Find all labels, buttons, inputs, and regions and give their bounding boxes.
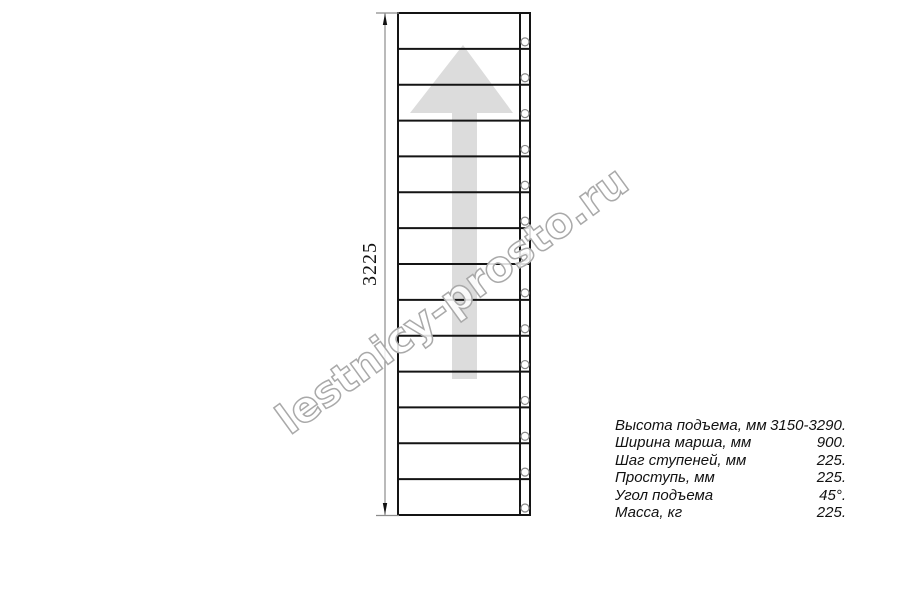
screw-hole-icon — [521, 181, 529, 189]
page: 3225 lestnicy-prosto.ru Высота подъема, … — [0, 0, 900, 600]
spec-label: Угол подъема — [615, 487, 713, 504]
specs-table: Высота подъема, мм3150-3290.Ширина марша… — [615, 417, 846, 521]
screw-hole-icon — [521, 361, 529, 369]
spec-row: Угол подъема45°. — [615, 487, 846, 504]
spec-value: 900. — [817, 434, 846, 451]
stringer-holes — [521, 38, 529, 512]
spec-row: Шаг ступеней, мм225. — [615, 452, 846, 469]
spec-row: Высота подъема, мм3150-3290. — [615, 417, 846, 434]
screw-hole-icon — [521, 74, 529, 82]
screw-hole-icon — [521, 432, 529, 440]
spec-row: Ширина марша, мм900. — [615, 434, 846, 451]
screw-hole-icon — [521, 325, 529, 333]
dimension-arrowhead-bottom — [383, 503, 387, 515]
spec-row: Проступь, мм225. — [615, 469, 846, 486]
screw-hole-icon — [521, 289, 529, 297]
spec-label: Шаг ступеней, мм — [615, 452, 746, 469]
spec-value: 225. — [817, 452, 846, 469]
spec-label: Масса, кг — [615, 504, 682, 521]
screw-hole-icon — [521, 38, 529, 46]
screw-hole-icon — [521, 217, 529, 225]
dimension-arrowhead-top — [383, 14, 387, 26]
spec-label: Высота подъема, мм — [615, 417, 767, 434]
spec-value: 225. — [817, 469, 846, 486]
spec-value: 3150-3290. — [770, 417, 846, 434]
up-direction-arrow-icon — [410, 45, 513, 379]
screw-hole-icon — [521, 504, 529, 512]
screw-hole-icon — [521, 396, 529, 404]
spec-label: Проступь, мм — [615, 469, 715, 486]
spec-value: 225. — [817, 504, 846, 521]
spec-value: 45°. — [819, 487, 846, 504]
screw-hole-icon — [521, 110, 529, 118]
spec-label: Ширина марша, мм — [615, 434, 751, 451]
dimension-annotation: 3225 — [359, 13, 399, 516]
screw-hole-icon — [521, 468, 529, 476]
spec-row: Масса, кг225. — [615, 504, 846, 521]
dimension-label: 3225 — [359, 242, 381, 286]
screw-hole-icon — [521, 145, 529, 153]
screw-hole-icon — [521, 253, 529, 261]
